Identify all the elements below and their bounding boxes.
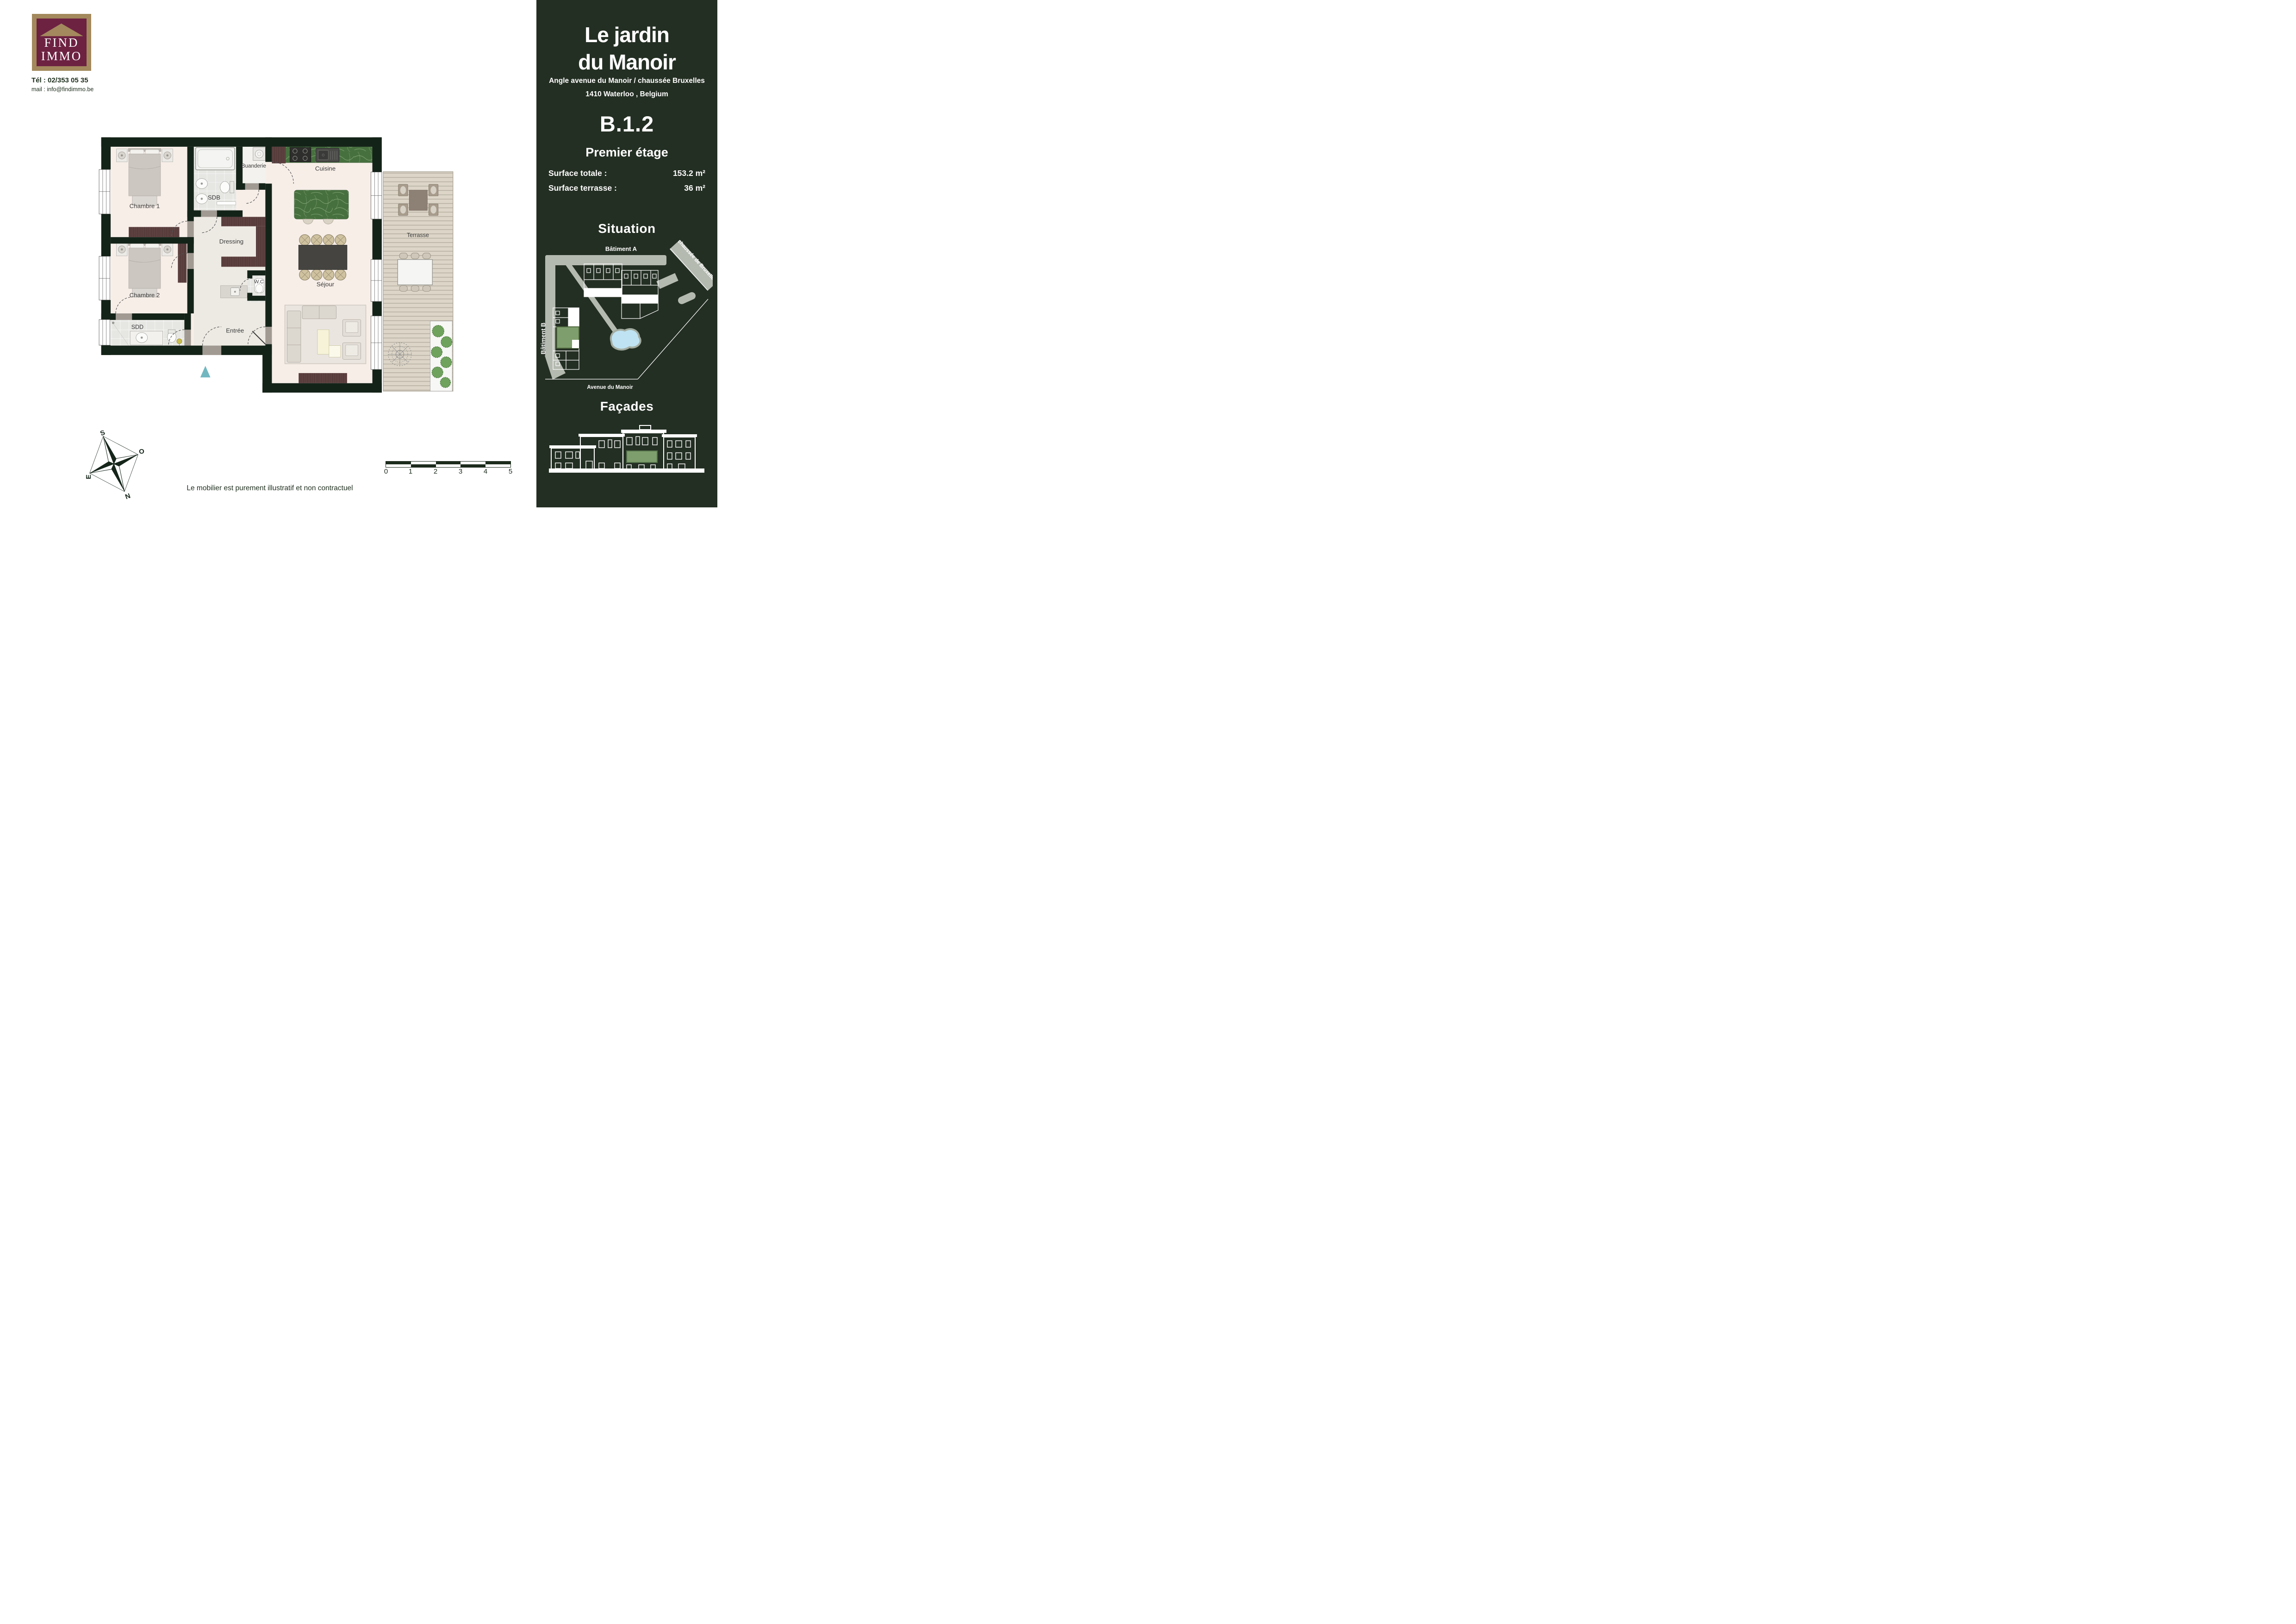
unit-code: B.1.2 <box>536 111 717 137</box>
surface-total-value: 153.2 m² <box>673 169 705 178</box>
label-terrasse: Terrasse <box>407 232 429 238</box>
surface-terrace-label: Surface terrasse : <box>548 183 617 193</box>
agency-phone: Tél : 02/353 05 35 <box>31 76 88 84</box>
findimmo-logo: FIND IMMO <box>32 14 91 71</box>
scale-5: 5 <box>508 468 513 475</box>
scale-4: 4 <box>483 468 488 475</box>
map-label-batiment-b: Bâtiment B <box>541 323 547 355</box>
info-panel: Le jardin du Manoir Angle avenue du Mano… <box>536 0 717 507</box>
floorplan-drawing: Chambre 1 SDB Buanderie Cuisine Dressing… <box>94 130 463 398</box>
logo-inner-square: FIND IMMO <box>37 19 87 66</box>
scale-bar: 0 1 2 3 4 5 <box>386 461 511 476</box>
compass-south: S <box>99 431 106 437</box>
logo-roof-icon <box>37 21 87 37</box>
pond <box>611 329 641 350</box>
label-entree: Entrée <box>226 327 244 334</box>
label-chambre2: Chambre 2 <box>130 292 160 299</box>
label-chambre1: Chambre 1 <box>130 203 160 210</box>
laundry-fixtures <box>253 147 266 160</box>
project-title: Le jardin du Manoir <box>536 21 717 76</box>
label-wc: W.C <box>254 279 264 285</box>
scale-3: 3 <box>458 468 463 475</box>
address-line2: 1410 Waterloo , Belgium <box>536 87 717 101</box>
map-label-avenue: Avenue du Manoir <box>587 385 633 390</box>
logo-text-find: FIND <box>37 36 87 50</box>
scale-2: 2 <box>433 468 438 475</box>
surface-table: Surface totale : 153.2 m² Surface terras… <box>548 169 705 198</box>
label-cuisine: Cuisine <box>315 165 336 172</box>
situation-map: Bâtiment A Bâtiment B chaussée de Bruxel… <box>541 240 713 393</box>
surface-total-label: Surface totale : <box>548 169 607 178</box>
compass-north: N <box>124 492 131 500</box>
surface-total-row: Surface totale : 153.2 m² <box>548 169 705 178</box>
label-sejour: Séjour <box>317 281 335 287</box>
agency-email: mail : info@findimmo.be <box>31 86 93 93</box>
label-sdd: SDD <box>131 324 143 331</box>
label-sdb: SDB <box>208 194 220 201</box>
project-title-line2: du Manoir <box>536 49 717 76</box>
project-title-line1: Le jardin <box>536 21 717 49</box>
scale-0: 0 <box>383 468 389 475</box>
label-dressing: Dressing <box>219 238 243 245</box>
address-line1: Angle avenue du Manoir / chaussée Bruxel… <box>536 74 717 87</box>
entrance-triangle-icon <box>200 366 211 377</box>
batiment-a-building <box>584 264 658 319</box>
logo-text-immo: IMMO <box>37 50 87 63</box>
project-address: Angle avenue du Manoir / chaussée Bruxel… <box>536 74 717 101</box>
highlighted-unit-facade <box>627 451 657 462</box>
floor-label: Premier étage <box>536 145 717 160</box>
situation-heading: Situation <box>536 221 717 236</box>
map-label-batiment-a: Bâtiment A <box>605 245 637 252</box>
furniture-disclaimer: Le mobilier est purement illustratif et … <box>94 484 446 493</box>
facade-elevation <box>548 424 705 475</box>
compass-east: E <box>86 475 93 479</box>
batiment-b-building <box>553 308 579 369</box>
brochure-page: FIND IMMO Tél : 02/353 05 35 mail : info… <box>0 0 717 507</box>
scale-1: 1 <box>408 468 413 475</box>
compass-west: O <box>139 448 144 456</box>
facades-heading: Façades <box>536 399 717 414</box>
label-buanderie: Buanderie <box>242 163 266 169</box>
surface-terrace-value: 36 m² <box>684 183 705 193</box>
surface-terrace-row: Surface terrasse : 36 m² <box>548 183 705 193</box>
